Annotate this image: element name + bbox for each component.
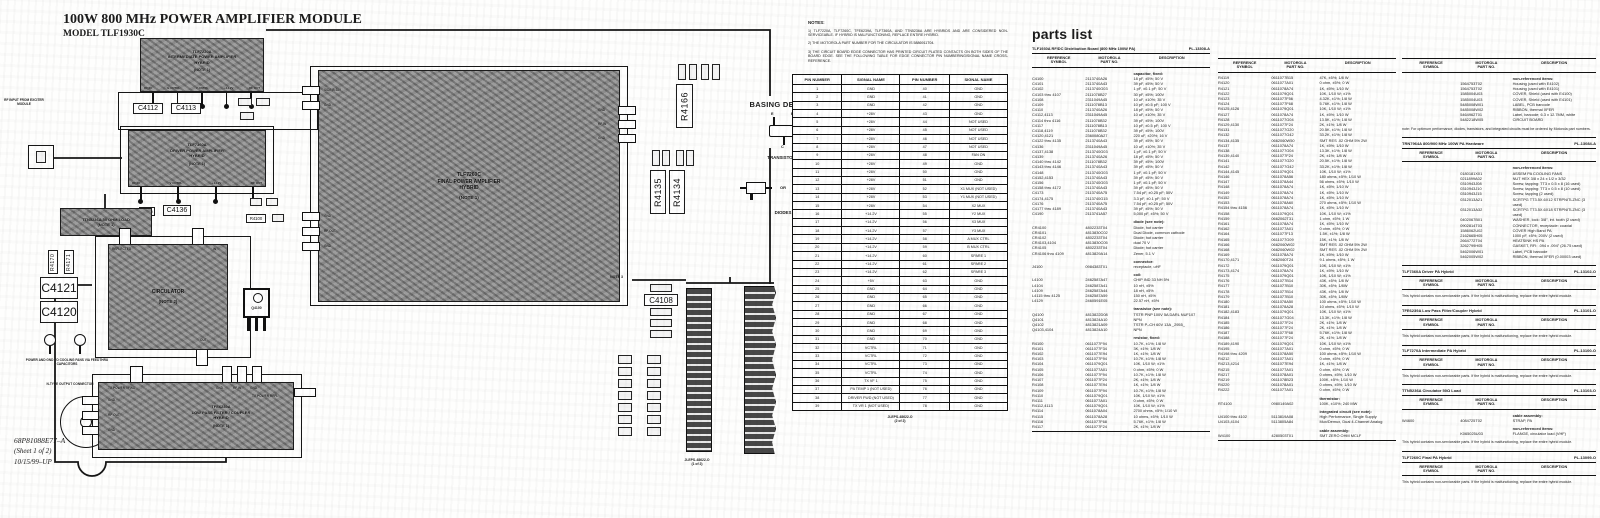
parts-board-line: TLF1930A RF/DC Distribution Board (800 M… [1032,46,1210,53]
component-label-box [689,64,697,80]
diode-lead [766,187,772,189]
rf-input-connector-pin [36,151,46,163]
pin-table-cell: +28V [842,118,900,126]
parts-ref: U4103,4104 [1218,419,1271,424]
parts-ref: CR4106 thru 4109 [1032,251,1085,256]
pin-table-cell: 70 [900,335,949,343]
component-label-r4100: R4100 [246,214,266,223]
parts-partno: 0984383T01 [1085,264,1133,269]
parts-header-part: MOTOROLA PART NO. [1460,151,1512,160]
pin-table-cell: PA TEMP 1 (NOT USED) [842,385,900,393]
diode-tab [750,194,753,200]
pin-table-cell: 76 [900,385,949,393]
parts-ref: J4100 [1032,264,1085,269]
basing-pin-c: C [781,145,784,149]
pin-table-cell: NOT USED [949,143,1007,151]
parts-partno: K065025U03 [1460,431,1512,436]
parts-desc: STRAP, PA [1513,418,1596,423]
pin-table-cell: 49 [900,160,949,168]
pin-table-cell: GND [949,369,1007,377]
circulator-port-in-label: IN [213,247,216,251]
pin-table-cell: +14.2V [842,243,900,251]
parts-col2: REFERENCE SYMBOLMOTOROLA PART NO.DESCRIP… [1218,58,1396,441]
pin-table-cell: 59 [900,243,949,251]
pin-table-cell: +14.2V [842,260,900,268]
pin-table-cell: 47 [900,143,949,151]
diode-body [746,182,766,194]
lpf-pad-top [252,366,262,383]
hybrid-load: TTN5236A 50 OHM LOAD (NOTE 1) [60,208,152,236]
pin-table-cell: 27 [793,302,842,310]
parts-desc: Zener, 5.1 V [1133,251,1210,256]
hybrid-final-type: HYBRID [459,185,478,192]
component-label-box [647,391,661,400]
pin-table-cell: 78 [900,402,949,410]
pin-table-cell: B MUX CTRL [949,243,1007,251]
final-pad [302,86,320,95]
parts-row: C41902113741A575,000 pF, ±5%; 50 V [1032,211,1210,216]
pin-table-cell: 67 [900,310,949,318]
parts-header-desc: DESCRIPTION [1133,56,1210,65]
parts-header-part: MOTOROLA PART NO. [1460,465,1512,474]
pin-table-cell: GND [949,277,1007,285]
component-label-box [647,403,661,412]
pin-table-cell: 37 [793,385,842,393]
transistor-q4100-label: Q4100 [245,306,268,310]
pin-table-header-row: PIN NUMBER SIGNAL NAME PIN NUMBER SIGNAL… [793,75,1008,85]
pin-table-cell: 7 [793,135,842,143]
parts-header-desc: DESCRIPTION [1513,279,1596,288]
parts-ref: R4117 [1032,424,1085,429]
pin-table-cell: 50 [900,168,949,176]
component-label-box [238,98,252,106]
pin-table-cell: VCTRL [842,344,900,352]
pin-label: +14.2V [224,86,233,90]
pin-table-cell: SPARE 2 [949,260,1007,268]
component-label-r4135: R4135 [650,170,666,214]
pin-table-row: 12+28V51GND [793,176,1008,184]
pin-table-cell: 8 [793,143,842,151]
pin-table-cell: SPARE 1 [949,252,1007,260]
parts-header-part: MOTOROLA PART NO. [1460,318,1512,327]
parts-ref: L4129 [1032,298,1085,303]
doc-number: 68P81088E77–A [14,436,65,445]
pin-table-row: 9+28V48FAN ON [793,151,1008,159]
pin-table-cell: 72 [900,352,949,360]
component-label-box [618,379,632,388]
pin-table-cell: +14.2V [842,268,900,276]
parts-section-name: TTN5236A Circulator 50Ω Load [1402,388,1461,393]
parts-partno: 4280503T01 [1271,433,1319,438]
pin-table-cell: GND [949,360,1007,368]
parts-header-ref: REFERENCE SYMBOL [1402,358,1460,367]
pin-table-cell: 55 [900,210,949,218]
hybrid-ipa-type: HYBRID [194,60,209,65]
component-label-box [647,355,661,364]
pin-table-cell: GND [949,160,1007,168]
parts-section-name: TLF7270A Intermediate PA Hybrid [1402,348,1466,353]
component-label-box [650,319,672,327]
pin-table-cell: 22 [793,260,842,268]
hybrid-load-note: (NOTE 1) [97,222,114,227]
parts-section-pl: PL-13100-O [1574,348,1596,353]
component-label-box [272,214,284,222]
pin-table-cell: +28V [842,110,900,118]
parts-header-ref: REFERENCE SYMBOL [1402,398,1460,407]
parts-list-section-title: TLF7270A Intermediate PA HybridPL-13100-… [1402,345,1596,356]
transistor-q4100: Q4100 [243,288,270,318]
pin-table-cell: 74 [900,369,949,377]
basing-or-label: OR [780,185,786,190]
pin-table-cell: 60 [900,252,949,260]
hybrid-final-note: (NOTE 1) [459,195,479,200]
parts-row: RT41000980149A02100K, ±10%; 240 MW [1218,401,1396,406]
lpf-pad-right [294,388,316,397]
parts-list-section-title: TFE6239A Low Pass Filter/Coupler HybridP… [1402,305,1596,316]
parts-header-desc: DESCRIPTION [1513,61,1596,70]
pin-table-cell: 65 [900,293,949,301]
transistor-lead [783,137,785,145]
pin-table-cell: X3 MUX [949,218,1007,226]
pin-table-row: 25GND64GND [793,285,1008,293]
parts-row: 0312013A32SCRTPG TT3.5X.6X18 STRPNITLZNC… [1402,207,1596,217]
pin-table-cell: +28V [842,126,900,134]
parts-note: This hybrid contains non-serviceable par… [1402,480,1596,485]
pin-table-cell: 40 [900,85,949,93]
pin-table-cell: Y3 MUX [949,227,1007,235]
pin-table-cell: GND [949,101,1007,109]
pin-table-cell: NOT USED [949,126,1007,134]
component-label-r4134: R4134 [669,170,685,214]
component-label-box [256,98,270,106]
pin-table-cell: 20 [793,243,842,251]
parts-desc: RIBBON, thermal XFER (0.00003 used) [1513,254,1596,259]
parts-partno: 4084725T02 [1460,418,1512,423]
pin-table-row: 18+14.2V57Y3 MUX [793,227,1008,235]
pin-table-cell: 69 [900,327,949,335]
pin-table-cell: 2 [793,93,842,101]
component-label-box [266,198,278,206]
pin-table-cell: +28V [842,151,900,159]
parts-desc: receptacle, uHF [1133,264,1210,269]
parts-header-part: MOTOROLA PART NO. [1460,358,1512,367]
feedthru-capacitor-lead [79,346,81,354]
final-pad-label: GND [324,214,331,218]
pin-table-cell: +5V [842,277,900,285]
pin-table-cell: 1 [793,85,842,93]
transistor-q4100-hole [253,293,263,303]
parts-col-headers: REFERENCE SYMBOLMOTOROLA PART NO.DESCRIP… [1218,58,1396,73]
parts-col-headers: REFERENCE SYMBOLMOTOROLA PART NO.DESCRIP… [1402,276,1596,291]
parts-section-pl: PL-13102-O [1574,269,1596,274]
final-pad [302,227,320,236]
pin-table-cell: 68 [900,319,949,327]
circulator-name: CIRCULATOR [152,290,185,295]
hybrid-ipa-pin-labels: RF IN B CNTRL V CNTRL +14.2V RF OUT [141,86,263,90]
pin-table-cell: 6 [793,126,842,134]
pin-table-row: 34VCTRL73GND [793,360,1008,368]
pin-table-row: 39TX VR 1 (NOT USED)78GND [793,402,1008,410]
pin-table-cell: GND [949,293,1007,301]
pin-table-row: 20+14.2V59B MUX CTRL [793,243,1008,251]
pin-table-cell: GND [949,335,1007,343]
parts-desc: SCRTPG TT3.5X.6X18 STRPNITLZNC (3 used) [1513,207,1596,217]
feedthru-capacitor [74,334,86,346]
pin-table-cell: GND [842,319,900,327]
parts-col3: REFERENCE SYMBOLMOTOROLA PART NO.DESCRIP… [1402,58,1596,488]
final-pad [618,134,636,143]
pin-table-cell: 36 [793,377,842,385]
hybrid-driver: TLF7360A DRIVER POWER AMPLIFIER HYBRID (… [128,130,266,187]
pin-table-cell: GND [842,335,900,343]
lpf-pad-label: RF IN [233,386,241,390]
parts-row: R41170611077F242K, ±1%; 1/8 W [1032,424,1210,429]
pin-table-cell: 12 [793,176,842,184]
pin-label: RF OUT [251,181,262,185]
pin-table-cell: 46 [900,135,949,143]
pin-label: RF OUT [249,86,260,90]
notes-heading: NOTES: [808,20,1008,25]
pin-table-cell: VCTRL [842,352,900,360]
parts-desc: SMT ZERO OHM MCLF [1319,433,1396,438]
pin-table-cell: GND [949,394,1007,402]
component-label-box [650,308,672,316]
notes-section: NOTES: 1) TLF7220A, TLF7260C, TFE6239A, … [808,20,1008,64]
pin-table-cell: GND [949,352,1007,360]
note3-label: NOTE 3 [610,275,623,279]
pin-table-cell: +28V [842,135,900,143]
hybrid-lpf: TFE6239A LOW PASS FILTER / COUPLER HYBRI… [98,382,294,450]
pin-table-cell: GND [949,344,1007,352]
pin-table-cell: 71 [900,344,949,352]
parts-section-name: TLF7260C Final PA Hybrid [1402,455,1452,460]
pin-table-cell: GND [949,319,1007,327]
pin-table-row: 11+28V50GND [793,168,1008,176]
pin-table-cell: NOT USED [949,135,1007,143]
parts-list-panel: parts list TLF1930A RF/DC Distribution B… [1028,0,1600,518]
pin-table-row: 24+5V63GND [793,277,1008,285]
note-item: 2) THE MOTOROLA PART NUMBER FOR THE CIRC… [808,41,1008,46]
pin-table-cell: GND [949,85,1007,93]
lpf-pad-label: TX POWER REFL [252,394,278,398]
component-label-box [652,150,660,166]
parts-header-desc: DESCRIPTION [1513,358,1596,367]
pin-table-header: PIN NUMBER [793,75,842,85]
pin-table-cell: 41 [900,93,949,101]
parts-row: 5462005W02RIBBON, thermal XFER (0.00003 … [1402,254,1596,259]
component-label-c4112: C4112 [133,103,163,114]
pin-table-cell: +28V [842,202,900,210]
pin-table-row: 22+14.2V61SPARE 2 [793,260,1008,268]
pin-table-row: 15+28V54X2 MUX [793,202,1008,210]
parts-section-pl: PL-13101-O [1574,308,1596,313]
pin-table-row: 29GND68GND [793,319,1008,327]
pin-table-row: 36TX VF 175GND [793,377,1008,385]
pin-table-cell: 64 [900,285,949,293]
pin-table-cell: 14 [793,193,842,201]
parts-ref: R4222 [1218,387,1271,392]
parts-desc: 2K, ±1%; 1/8 W [1133,424,1210,429]
lpf-pad-top [222,366,232,383]
parts-list-section-title: TLF7260C Final PA HybridPL-13099-O [1402,451,1596,462]
parts-desc: 22.57 nH, ±5% [1133,298,1210,303]
doc-rev: 10/15/99–UP [14,458,52,466]
pin-table-cell: GND [842,310,900,318]
pin-table-cell: GND [842,293,900,301]
lpf-pad-label: TX POWER VFWD [108,386,135,390]
parts-header-desc: DESCRIPTION [1513,465,1596,474]
parts-desc: SCRTPG TT3.5X.6X12 STRPNITLZNC (3 used) [1513,197,1596,207]
component-label-box [650,284,672,292]
final-pad-label: GND [324,244,331,248]
pin-table-cell: 54 [900,202,949,210]
pin-table-row: 6+28V45NOT USED [793,126,1008,134]
parts-col1: TLF1930A RF/DC Distribution Board (800 M… [1032,46,1210,432]
pin-table-header: PIN NUMBER [900,75,949,85]
page-title: 100W 800 MHz POWER AMPLIFIER MODULE [63,12,362,28]
pin-table-cell: +14.2V [842,210,900,218]
pin-table-cell: GND [842,327,900,335]
pin-table-cell: GND [949,110,1007,118]
parts-partno: 0312013A21 [1460,197,1512,202]
pin-table-row: 27GND66GND [793,302,1008,310]
parts-col-headers: REFERENCE SYMBOLMOTOROLA PART NO.DESCRIP… [1402,58,1596,73]
parts-header-desc: DESCRIPTION [1513,151,1596,160]
hybrid-final-name: TLF7260C [457,172,481,179]
hybrid-driver-pins [128,187,266,200]
pin-table-cell: 5 [793,118,842,126]
pin-table-cell: NOT USED [949,118,1007,126]
pin-table-cell: +14.2V [842,218,900,226]
feedthru-capacitor [44,334,56,346]
basing-pin-e: E [771,112,774,116]
pin-table-cell: 16 [793,210,842,218]
component-label-c4121: C4121 [40,277,78,299]
note-item: 3) THE CIRCUIT BOARD EDGE CONNECTOR HAS … [808,50,1008,64]
pin-table-cell: 44 [900,118,949,126]
component-label-box [676,150,684,166]
pin-table-cell: 9 [793,151,842,159]
pin-label: RF IN [132,181,140,185]
parts-ref: W4600 [1402,418,1460,423]
parts-row: J41000984383T01receptacle, uHF [1032,264,1210,269]
pin-table-cell: 52 [900,185,949,193]
parts-header-ref: REFERENCE SYMBOL [1218,61,1271,70]
pin-table-cell: VCTRL [842,369,900,377]
feedthru-capacitor-lead [49,346,51,354]
parts-desc: 0 ohm, ±5%; 0 W [1319,387,1396,392]
pin-table-row: 31GND70GND [793,335,1008,343]
transistor-q4100-lead [263,318,266,331]
pin-label: RF IN [144,86,152,90]
parts-section-pl: PL-13084-A [1574,141,1596,146]
parts-row: R42220611077A010 ohm, ±5%; 0 W [1218,387,1396,392]
pin-table-row: 7+28V46NOT USED [793,135,1008,143]
pin-table-caption-line2: (2 of 2) [792,419,1008,423]
component-label-box [618,415,632,424]
parts-col-headers: REFERENCE SYMBOLMOTOROLA PART NO.DESCRIP… [1402,462,1596,477]
transistor-q4100-lead [255,318,258,331]
component-label-r4170: R4170 [48,250,58,274]
pin-table-cell: 43 [900,110,949,118]
pin-table-cell: GND [949,327,1007,335]
pin-table-row: 5+28V44NOT USED [793,118,1008,126]
pin-table-cell: GND [842,93,900,101]
component-label-box [250,198,262,206]
pin-table-cell: 19 [793,235,842,243]
pin-table-cell: 32 [793,344,842,352]
parts-header-desc: DESCRIPTION [1513,398,1596,407]
pin-table-row: 2GND41GND [793,93,1008,101]
pin-table-cell: 51 [900,176,949,184]
parts-partno: 2460591E05 [1085,298,1133,303]
hybrid-lpf-note: (NOTE 1) [213,424,229,428]
board-diagram: 100W 800 MHz POWER AMPLIFIER MODULE MODE… [0,0,800,518]
parts-header-part: MOTOROLA PART NO. [1460,61,1512,70]
parts-note: This hybrid contains non-serviceable par… [1402,440,1596,445]
pin-table-cell: 35 [793,369,842,377]
component-label-box [662,150,670,166]
circulator-block: CIRCULATOR (NOTE 2) [108,244,228,350]
parts-row: CR4106 thru 41094813829A14Zener, 5.1 V [1032,251,1210,256]
parts-partno: 2113741A57 [1085,211,1133,216]
diode-basing-icon [740,178,774,202]
pin-table-cell: 48 [900,151,949,159]
pin-table-cell: 24 [793,277,842,285]
final-pad [302,212,320,221]
lpf-pad-label: GND [250,386,257,390]
parts-row: L41292460591E0522.57 nH, ±5% [1032,298,1210,303]
parts-note: This hybrid contains non-serviceable par… [1402,374,1596,379]
parts-row: W41004280503T01SMT ZERO OHM MCLF [1218,433,1396,438]
parts-partno: 0312013A32 [1460,207,1512,212]
parts-partno: 5482218W05 [1460,117,1512,122]
parts-partno: 4813829A14 [1085,251,1133,256]
pin-table-cell: GND [949,402,1007,410]
parts-header-part: MOTOROLA PART NO. [1085,56,1133,65]
component-label-box [647,379,661,388]
pin-table-row: 32VCTRL71GND [793,344,1008,352]
parts-desc: NPN [1133,327,1210,332]
parts-note: This hybrid contains non-serviceable par… [1402,294,1596,299]
parts-partno: 4813824A10 [1085,327,1133,332]
parts-header-ref: REFERENCE SYMBOL [1402,318,1460,327]
pin-table-cell: GND [842,285,900,293]
parts-col-headers: REFERENCE SYMBOLMOTOROLA PART NO.DESCRIP… [1402,315,1596,330]
pin-table-cell: +14.2V [842,252,900,260]
parts-header-ref: REFERENCE SYMBOL [1402,279,1460,288]
pin-table-cell: 11 [793,168,842,176]
pin-table-cell: GND [949,310,1007,318]
pin-table-row: 28GND67GND [793,310,1008,318]
hybrid-driver-type: HYBRID [189,153,204,158]
pin-table-cell: +28V [842,193,900,201]
pin-table-row: 30GND69GND [793,327,1008,335]
component-label-box [618,355,632,364]
pin-table-header: SIGNAL NAME [949,75,1007,85]
component-label-c4113: C4113 [171,103,201,114]
pin-table-row: 8+28V47NOT USED [793,143,1008,151]
parts-ref: Q4103,4104 [1032,327,1085,332]
parts-section-name: TFE6239A Low Pass Filter/Coupler Hybrid [1402,308,1482,313]
parts-note: This hybrid contains non-serviceable par… [1402,334,1596,339]
parts-section-pl: PL-13103-O [1574,388,1596,393]
pin-label: +14.2V [212,181,221,185]
notes-list: 1) TLF7220A, TLF7260C, TFE6239A, TLF7360… [808,29,1008,64]
parts-row: W46004084725T02STRAP, PA [1402,418,1596,423]
final-pad [618,120,636,129]
final-pad-label: GND [598,136,605,140]
